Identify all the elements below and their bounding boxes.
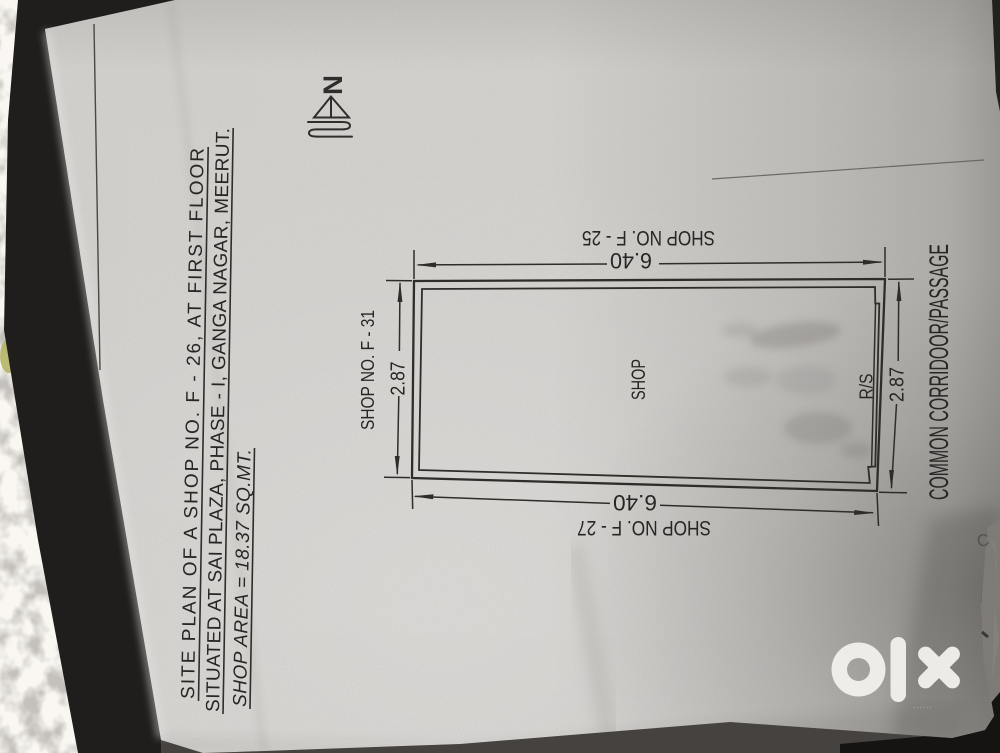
svg-text:SHOP NO. F - 25: SHOP NO. F - 25 <box>582 226 715 250</box>
svg-text:SHOP NO. F - 27: SHOP NO. F - 27 <box>577 516 711 540</box>
svg-text:COMMON CORRIDOOR/PASSAGE: COMMON CORRIDOOR/PASSAGE <box>924 244 954 500</box>
svg-text:N: N <box>318 75 348 95</box>
svg-text:SHOP: SHOP <box>628 359 650 400</box>
svg-text:6.40: 6.40 <box>613 490 657 515</box>
svg-text:......: ...... <box>913 701 932 710</box>
svg-text:R/S: R/S <box>857 374 877 400</box>
svg-text:SHOP NO. F - 31: SHOP NO. F - 31 <box>358 310 378 430</box>
svg-text:6.40: 6.40 <box>610 248 652 273</box>
svg-text:2.87: 2.87 <box>388 362 410 396</box>
svg-text:2.87: 2.87 <box>886 367 909 402</box>
